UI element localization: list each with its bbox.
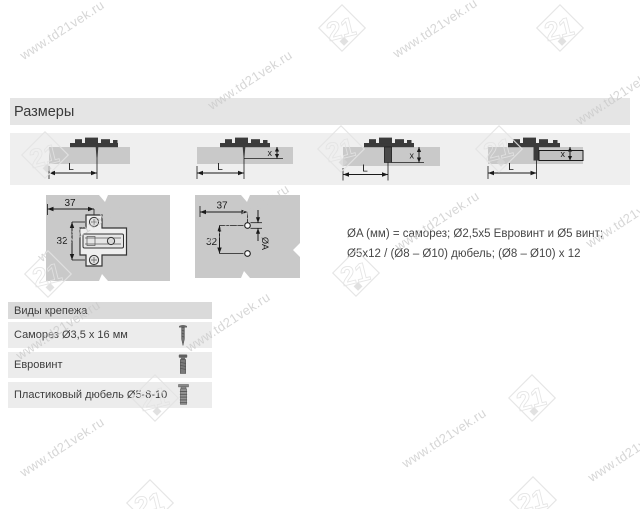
fasteners-table-title: Виды крепежа xyxy=(14,305,87,317)
dowel-3 xyxy=(384,147,391,163)
td21vek-logo-icon: 21 xyxy=(531,0,589,57)
plastic-dowel-icon xyxy=(178,384,189,406)
fastener-label: Пластиковый дюбель Ø5-8-10 xyxy=(14,389,167,401)
svg-text:21: 21 xyxy=(324,11,359,47)
svg-text:21: 21 xyxy=(132,486,167,509)
euro-screw-icon xyxy=(178,354,188,376)
dim-label-length-1: L xyxy=(68,162,74,173)
catalog-page: Размеры L xyxy=(0,0,640,509)
dim-label-depth-3: x xyxy=(410,151,415,161)
side-view-drawings: L x L xyxy=(10,132,630,190)
dim-label-37-plate: 37 xyxy=(64,198,76,209)
section-header: Размеры xyxy=(10,98,630,125)
wood-screw-icon xyxy=(178,324,188,347)
dim-label-depth-2: x xyxy=(268,148,273,158)
side-view-2: x L xyxy=(197,138,293,179)
svg-text:21: 21 xyxy=(515,483,550,509)
td21vek-logo-icon: 21 xyxy=(121,474,179,509)
dim-label-length-2: L xyxy=(217,162,223,173)
mounting-plate-3 xyxy=(364,138,414,148)
cam-adjuster xyxy=(107,237,114,244)
section-title: Размеры xyxy=(14,104,74,120)
td21vek-logo-icon: 21 xyxy=(313,0,371,57)
fastener-label: Евровинт xyxy=(14,359,63,371)
dim-label-hole-diameter: ØA xyxy=(260,237,270,250)
watermark-url-text: www.td21vek.ru xyxy=(399,405,489,471)
side-view-4: x L xyxy=(488,138,583,179)
td21vek-logo-icon: 21 xyxy=(503,369,561,427)
dim-label-length-3: L xyxy=(362,164,368,175)
fastener-row-euro-screw: Евровинт xyxy=(8,352,212,378)
side-view-1: L xyxy=(49,138,130,179)
svg-text:21: 21 xyxy=(514,381,549,417)
watermark-url-text: www.td21vek.ru xyxy=(390,0,480,61)
dim-label-37-drill: 37 xyxy=(216,201,228,212)
drill-hole-top xyxy=(245,223,251,229)
watermark-url-text: www.td21vek.ru xyxy=(17,414,107,480)
svg-text:21: 21 xyxy=(542,11,577,47)
watermark-url-text: www.td21vek.ru xyxy=(17,0,107,63)
dim-label-depth-4: x xyxy=(561,149,566,159)
watermark-url-text: www.td21vek.ru xyxy=(585,419,640,485)
side-view-3: x L xyxy=(343,138,440,181)
fasteners-table-header: Виды крепежа xyxy=(8,302,212,319)
fastener-label: Саморез Ø3,5 x 16 мм xyxy=(14,329,128,341)
fastener-row-wood-screw: Саморез Ø3,5 x 16 мм xyxy=(8,322,212,348)
panel-1 xyxy=(49,147,130,164)
td21vek-logo-icon: 21 xyxy=(504,471,562,509)
hole-spec-note: ØA (мм) = саморез; Ø2,5x5 Евровинт и Ø5 … xyxy=(347,225,639,264)
drill-pattern-drawing: 37 32 ØA xyxy=(195,193,300,279)
dim-label-32-plate: 32 xyxy=(56,236,68,247)
dim-label-32-drill: 32 xyxy=(206,237,218,248)
note-line-2: Ø5x12 / (Ø8 – Ø10) дюбель; (Ø8 – Ø10) x … xyxy=(347,245,639,265)
drill-hole-bottom xyxy=(245,251,251,257)
fastener-row-plastic-dowel: Пластиковый дюбель Ø5-8-10 xyxy=(8,382,212,408)
note-line-1: ØA (мм) = саморез; Ø2,5x5 Евровинт и Ø5 … xyxy=(347,225,639,245)
dim-label-length-4: L xyxy=(508,162,514,173)
plate-top-view-drawing: 37 32 xyxy=(46,193,170,284)
